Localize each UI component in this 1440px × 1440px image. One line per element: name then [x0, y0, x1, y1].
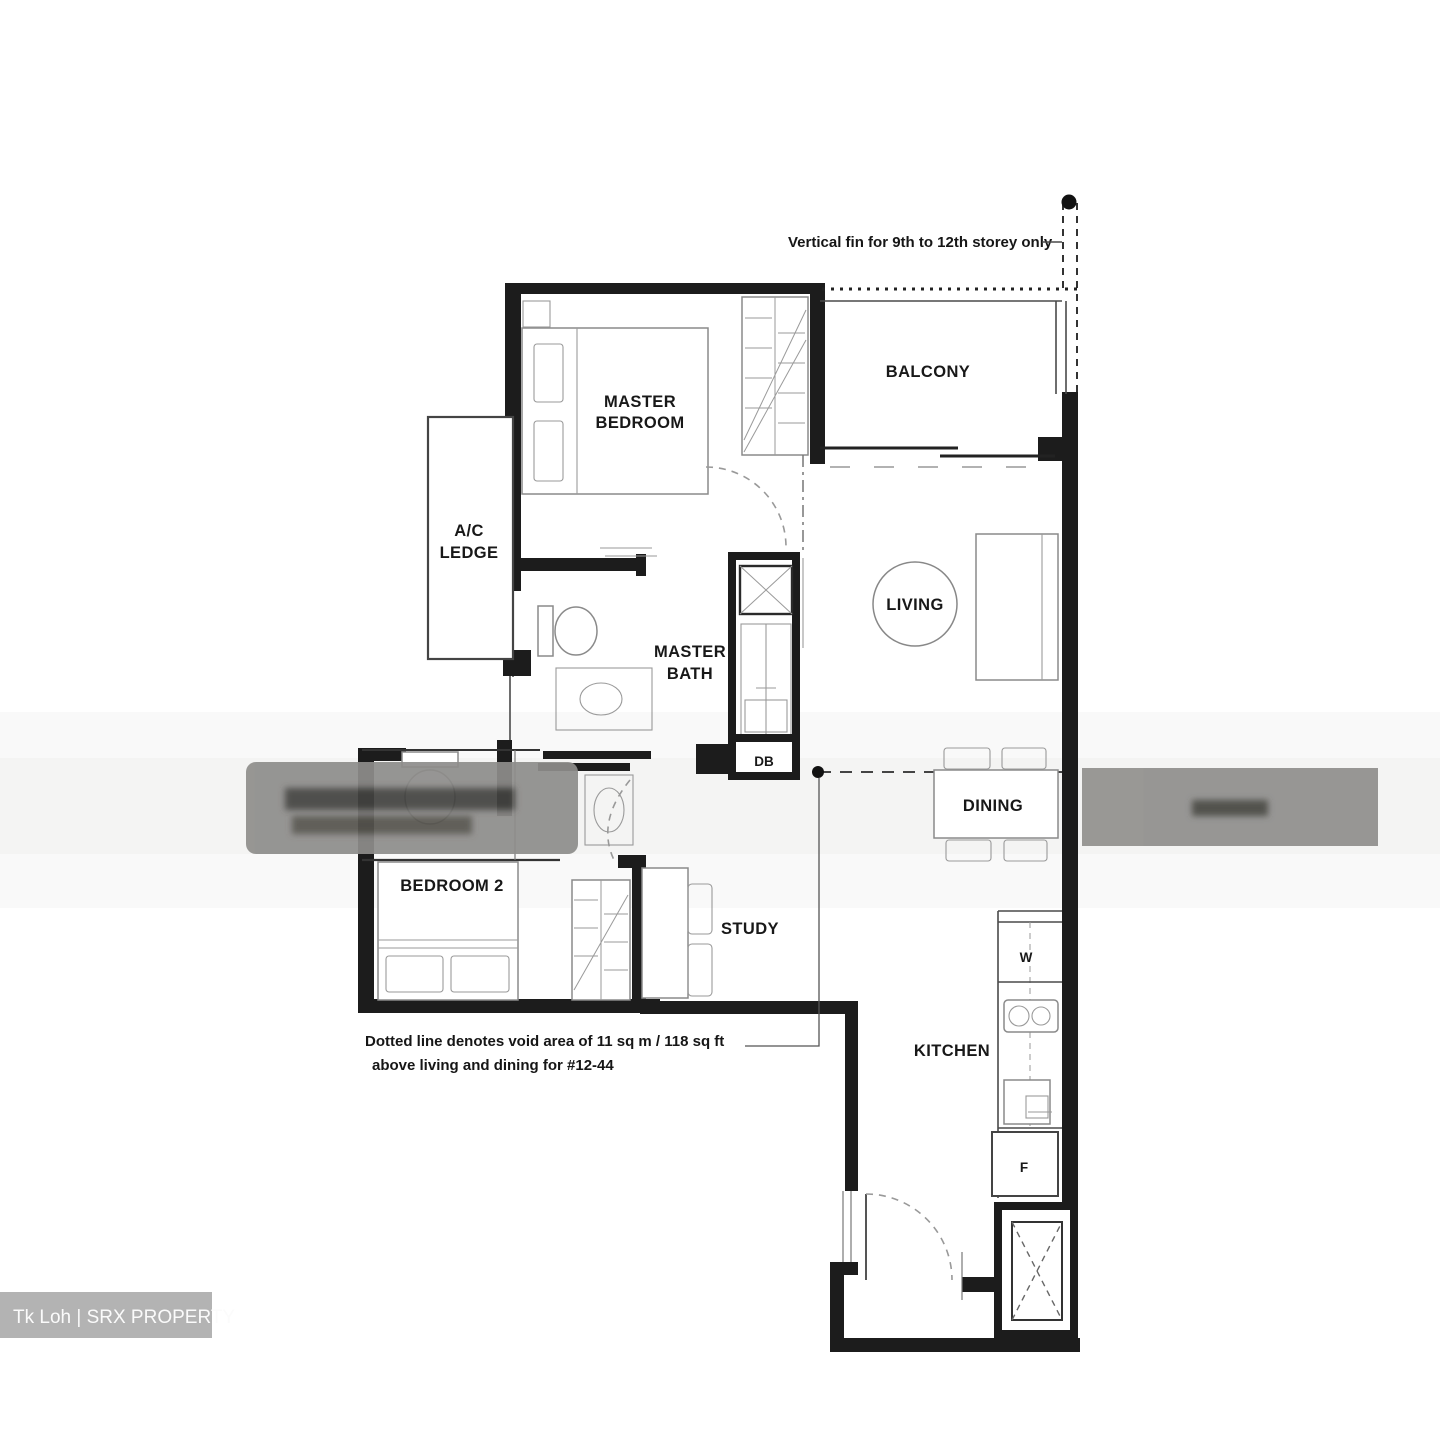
floorplan-page: Vertical fin for 9th to 12th storey only… — [0, 0, 1440, 1440]
stove-icon — [1004, 1080, 1052, 1124]
void-note-line2: above living and dining for #12-44 — [372, 1057, 614, 1074]
shaft-db-column: DB — [729, 556, 803, 776]
fridge-label: F — [1020, 1160, 1028, 1175]
living-label: LIVING — [886, 596, 943, 614]
kitchen: W F KITCHEN — [914, 911, 1062, 1198]
ac-ledge: A/CLEDGE — [428, 417, 513, 659]
void-note-line1: Dotted line denotes void area of 11 sq m… — [365, 1033, 724, 1050]
sofa-icon — [976, 534, 1058, 680]
credit-watermark: Tk Loh | SRX PROPERTY — [0, 1292, 235, 1338]
entry — [866, 1194, 1074, 1334]
fin-marker-dot — [1062, 195, 1077, 210]
study-label: STUDY — [721, 920, 779, 938]
watermark-band-right — [1082, 768, 1378, 846]
sink-icon — [1004, 1000, 1058, 1032]
duct-icon — [740, 566, 792, 614]
watermark-blob-left — [246, 762, 578, 854]
door-arc-icon — [866, 1194, 952, 1280]
sliding-door-icon — [820, 448, 1055, 467]
toilet-icon — [538, 606, 597, 656]
kitchen-label: KITCHEN — [914, 1042, 990, 1060]
bedroom2-label: BEDROOM 2 — [400, 877, 504, 895]
fridge-icon: F — [992, 1132, 1058, 1196]
wardrobe-icon — [742, 297, 808, 455]
door-arc-icon — [706, 467, 786, 547]
master-bedroom: MASTERBEDROOM — [522, 297, 808, 556]
db-label: DB — [754, 754, 774, 769]
credit-text: Tk Loh | SRX PROPERTY — [13, 1307, 235, 1328]
dining-label: DINING — [963, 797, 1023, 815]
vertical-fin-note: Vertical fin for 9th to 12th storey only — [788, 234, 1053, 251]
shaft-icon — [998, 1206, 1074, 1334]
wardrobe-icon — [572, 880, 630, 1000]
washer-label: W — [1020, 950, 1033, 965]
bedroom2: BEDROOM 2 — [378, 862, 630, 1000]
void-marker-dot — [812, 766, 824, 778]
master-bath: MASTERBATH — [538, 606, 726, 730]
floorplan-drawing: Vertical fin for 9th to 12th storey only… — [0, 0, 1440, 1440]
master-bath-label: MASTERBATH — [654, 643, 726, 683]
balcony-label: BALCONY — [886, 363, 970, 381]
